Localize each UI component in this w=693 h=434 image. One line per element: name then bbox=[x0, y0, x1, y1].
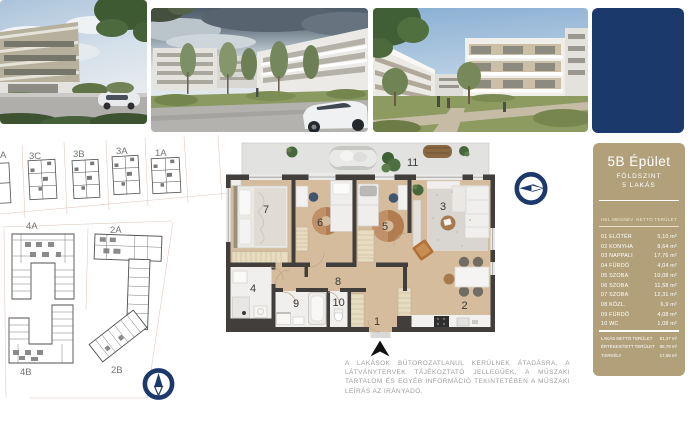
svg-text:6: 6 bbox=[317, 217, 323, 229]
svg-text:9: 9 bbox=[293, 298, 299, 310]
svg-text:4: 4 bbox=[250, 283, 256, 295]
svg-text:10: 10 bbox=[333, 297, 345, 309]
svg-text:7: 7 bbox=[263, 204, 269, 216]
svg-text:8: 8 bbox=[335, 276, 341, 288]
svg-text:1A: 1A bbox=[155, 148, 167, 159]
svg-text:3A: 3A bbox=[116, 146, 128, 157]
svg-text:3B: 3B bbox=[73, 149, 85, 160]
svg-text:4B: 4B bbox=[20, 367, 32, 378]
svg-text:1: 1 bbox=[374, 316, 380, 328]
svg-text:2: 2 bbox=[462, 300, 468, 312]
svg-text:5: 5 bbox=[382, 221, 388, 233]
svg-text:2B: 2B bbox=[111, 365, 123, 376]
svg-text:A: A bbox=[0, 150, 7, 161]
svg-text:4A: 4A bbox=[26, 221, 38, 232]
svg-text:3: 3 bbox=[440, 201, 446, 213]
svg-text:11: 11 bbox=[407, 157, 418, 169]
